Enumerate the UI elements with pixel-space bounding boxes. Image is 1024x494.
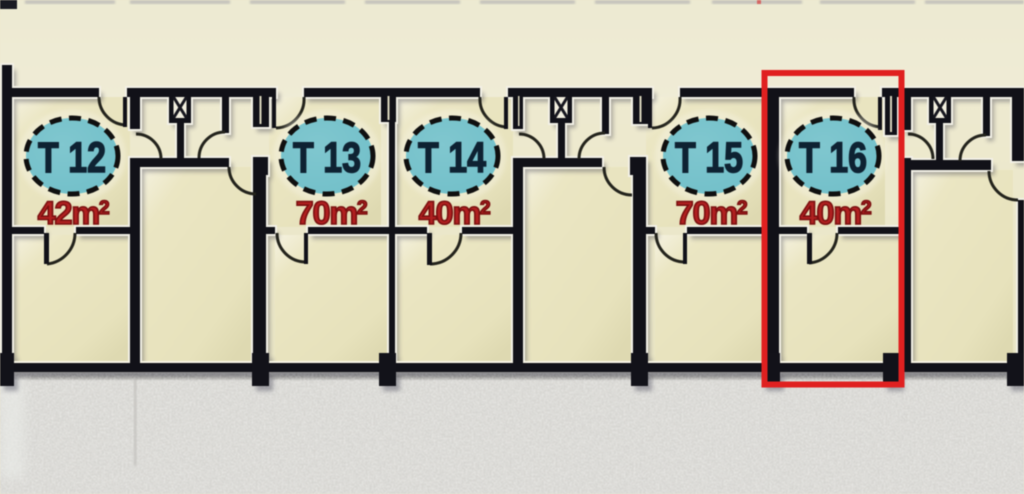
svg-text:70m2: 70m2	[296, 195, 367, 231]
svg-text:T 15: T 15	[675, 134, 743, 182]
svg-text:40m2: 40m2	[800, 195, 871, 231]
svg-text:T 13: T 13	[293, 134, 361, 182]
svg-text:T 12: T 12	[38, 134, 106, 182]
svg-text:42m2: 42m2	[38, 195, 109, 231]
svg-text:T 14: T 14	[418, 134, 486, 182]
svg-text:40m2: 40m2	[419, 195, 490, 231]
svg-text:T 16: T 16	[799, 134, 867, 182]
svg-text:70m2: 70m2	[676, 195, 747, 231]
